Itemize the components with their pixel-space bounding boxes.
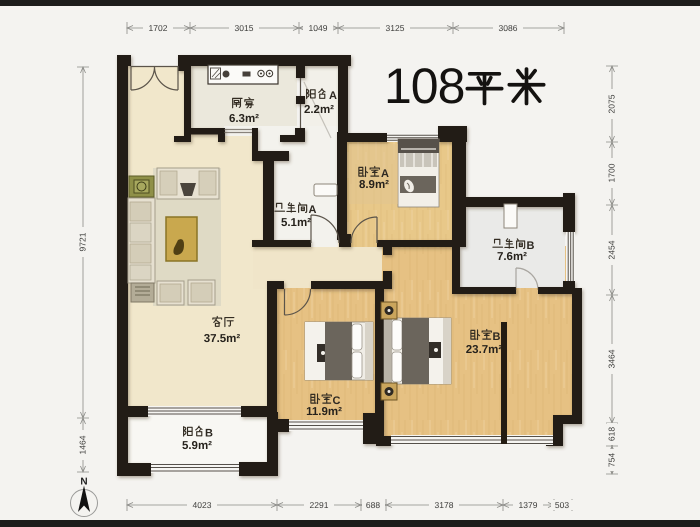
svg-text:2075: 2075 <box>606 94 616 113</box>
svg-text:3464: 3464 <box>606 349 616 368</box>
svg-text:754: 754 <box>606 453 616 467</box>
svg-text:N: N <box>80 477 87 488</box>
svg-text:503: 503 <box>555 500 569 510</box>
svg-text:108: 108 <box>384 58 464 114</box>
svg-text:B: B <box>527 240 535 252</box>
svg-text:3178: 3178 <box>435 500 454 510</box>
svg-text:1702: 1702 <box>149 23 168 33</box>
svg-text:1464: 1464 <box>77 435 87 454</box>
svg-text:11.9m²: 11.9m² <box>306 406 342 418</box>
svg-text:1049: 1049 <box>309 23 328 33</box>
svg-text:2.2m²: 2.2m² <box>304 104 334 116</box>
svg-text:23.7m²: 23.7m² <box>466 344 503 356</box>
svg-text:A: A <box>329 90 337 102</box>
svg-text:1379: 1379 <box>519 500 538 510</box>
svg-text:2291: 2291 <box>310 500 329 510</box>
svg-text:688: 688 <box>366 500 380 510</box>
svg-text:3015: 3015 <box>235 23 254 33</box>
svg-text:618: 618 <box>606 427 616 441</box>
svg-text:1700: 1700 <box>606 163 616 182</box>
svg-text:B: B <box>205 428 213 440</box>
svg-text:A: A <box>309 204 317 216</box>
svg-text:5.9m²: 5.9m² <box>182 440 212 452</box>
svg-text:6.3m²: 6.3m² <box>229 113 259 125</box>
svg-text:4023: 4023 <box>193 500 212 510</box>
svg-text:37.5m²: 37.5m² <box>204 333 241 345</box>
svg-text:9721: 9721 <box>77 232 87 251</box>
svg-text:8.9m²: 8.9m² <box>359 179 389 191</box>
svg-text:3086: 3086 <box>499 23 518 33</box>
svg-text:5.1m²: 5.1m² <box>281 217 311 229</box>
svg-text:7.6m²: 7.6m² <box>497 251 527 263</box>
svg-text:B: B <box>493 331 501 343</box>
svg-text:2454: 2454 <box>606 240 616 259</box>
svg-text:3125: 3125 <box>386 23 405 33</box>
